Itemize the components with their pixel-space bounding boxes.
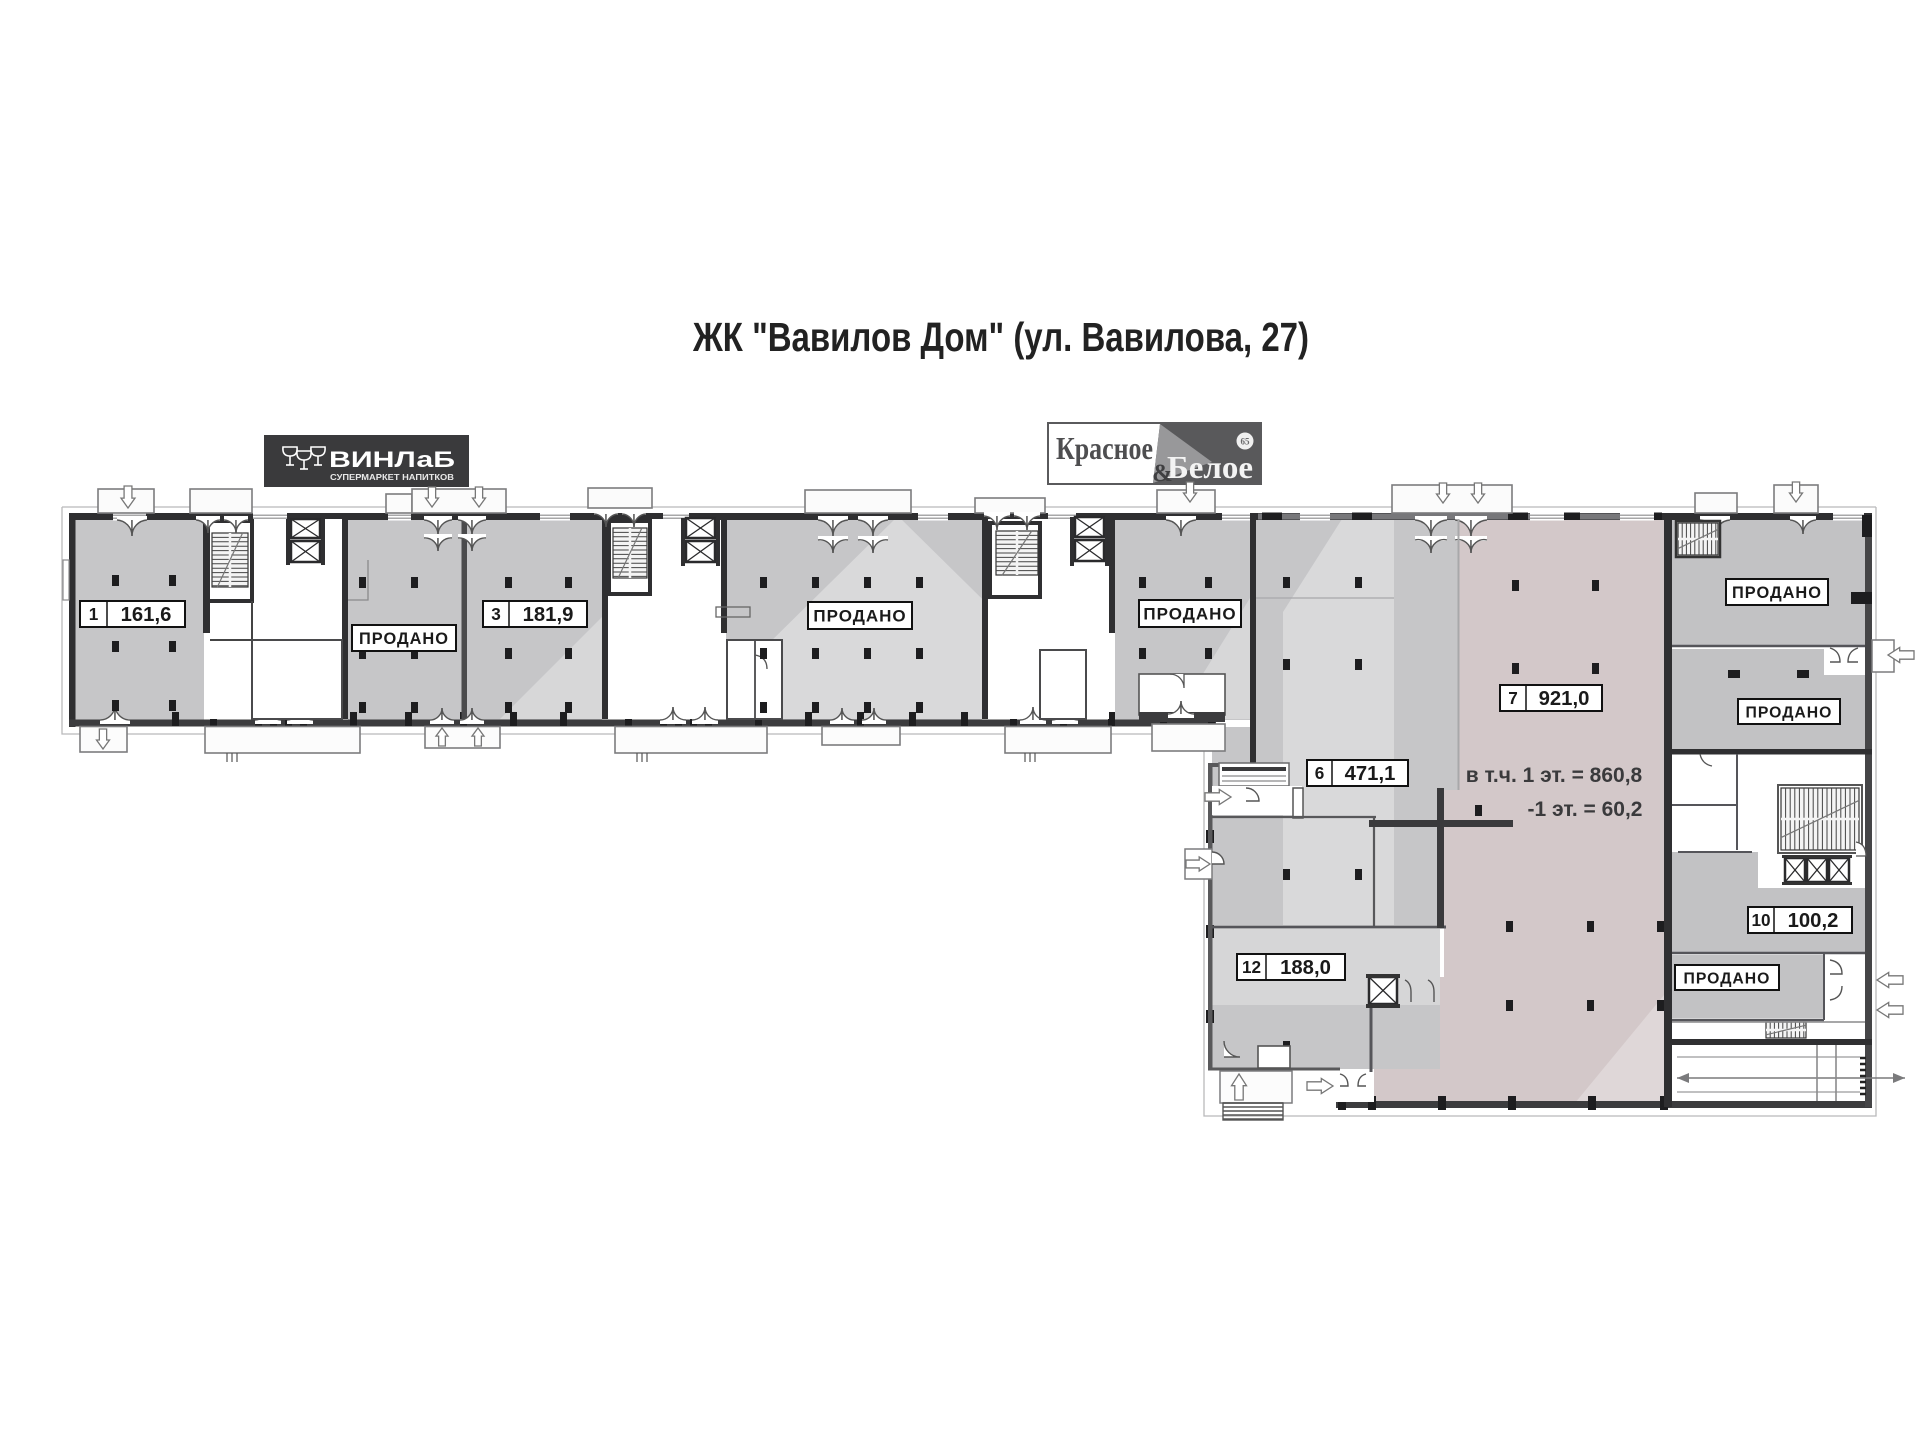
svg-text:161,6: 161,6 — [121, 604, 172, 626]
svg-text:Белое: Белое — [1167, 449, 1253, 485]
svg-text:1: 1 — [89, 604, 99, 624]
svg-text:3: 3 — [491, 604, 501, 624]
svg-text:СУПЕРМАРКЕТ НАПИТКОВ: СУПЕРМАРКЕТ НАПИТКОВ — [330, 472, 454, 482]
svg-text:921,0: 921,0 — [1539, 688, 1590, 710]
svg-text:471,1: 471,1 — [1345, 763, 1396, 785]
svg-text:ПРОДАНО: ПРОДАНО — [1732, 584, 1822, 602]
svg-text:12: 12 — [1242, 957, 1261, 977]
svg-text:-1 эт. = 60,2: -1 эт. = 60,2 — [1528, 798, 1643, 821]
svg-text:6: 6 — [1315, 763, 1325, 783]
svg-text:ВИНЛаБ: ВИНЛаБ — [329, 447, 455, 472]
svg-text:ПРОДАНО: ПРОДАНО — [1143, 605, 1236, 624]
svg-text:ПРОДАНО: ПРОДАНО — [813, 607, 906, 626]
svg-text:7: 7 — [1508, 688, 1518, 708]
svg-text:ЖК "Вавилов Дом" (ул. Вавилова: ЖК "Вавилов Дом" (ул. Вавилова, 27) — [692, 314, 1309, 360]
svg-text:181,9: 181,9 — [523, 604, 574, 626]
svg-text:188,0: 188,0 — [1280, 957, 1331, 979]
svg-text:ПРОДАНО: ПРОДАНО — [1684, 970, 1771, 987]
svg-text:10: 10 — [1751, 910, 1770, 930]
svg-text:ПРОДАНО: ПРОДАНО — [1746, 704, 1833, 721]
svg-text:в т.ч. 1 эт. = 860,8: в т.ч. 1 эт. = 860,8 — [1466, 764, 1643, 787]
svg-text:65: 65 — [1241, 437, 1251, 447]
svg-text:100,2: 100,2 — [1788, 910, 1839, 932]
svg-text:ПРОДАНО: ПРОДАНО — [359, 630, 449, 648]
svg-text:Красное: Красное — [1056, 430, 1153, 466]
